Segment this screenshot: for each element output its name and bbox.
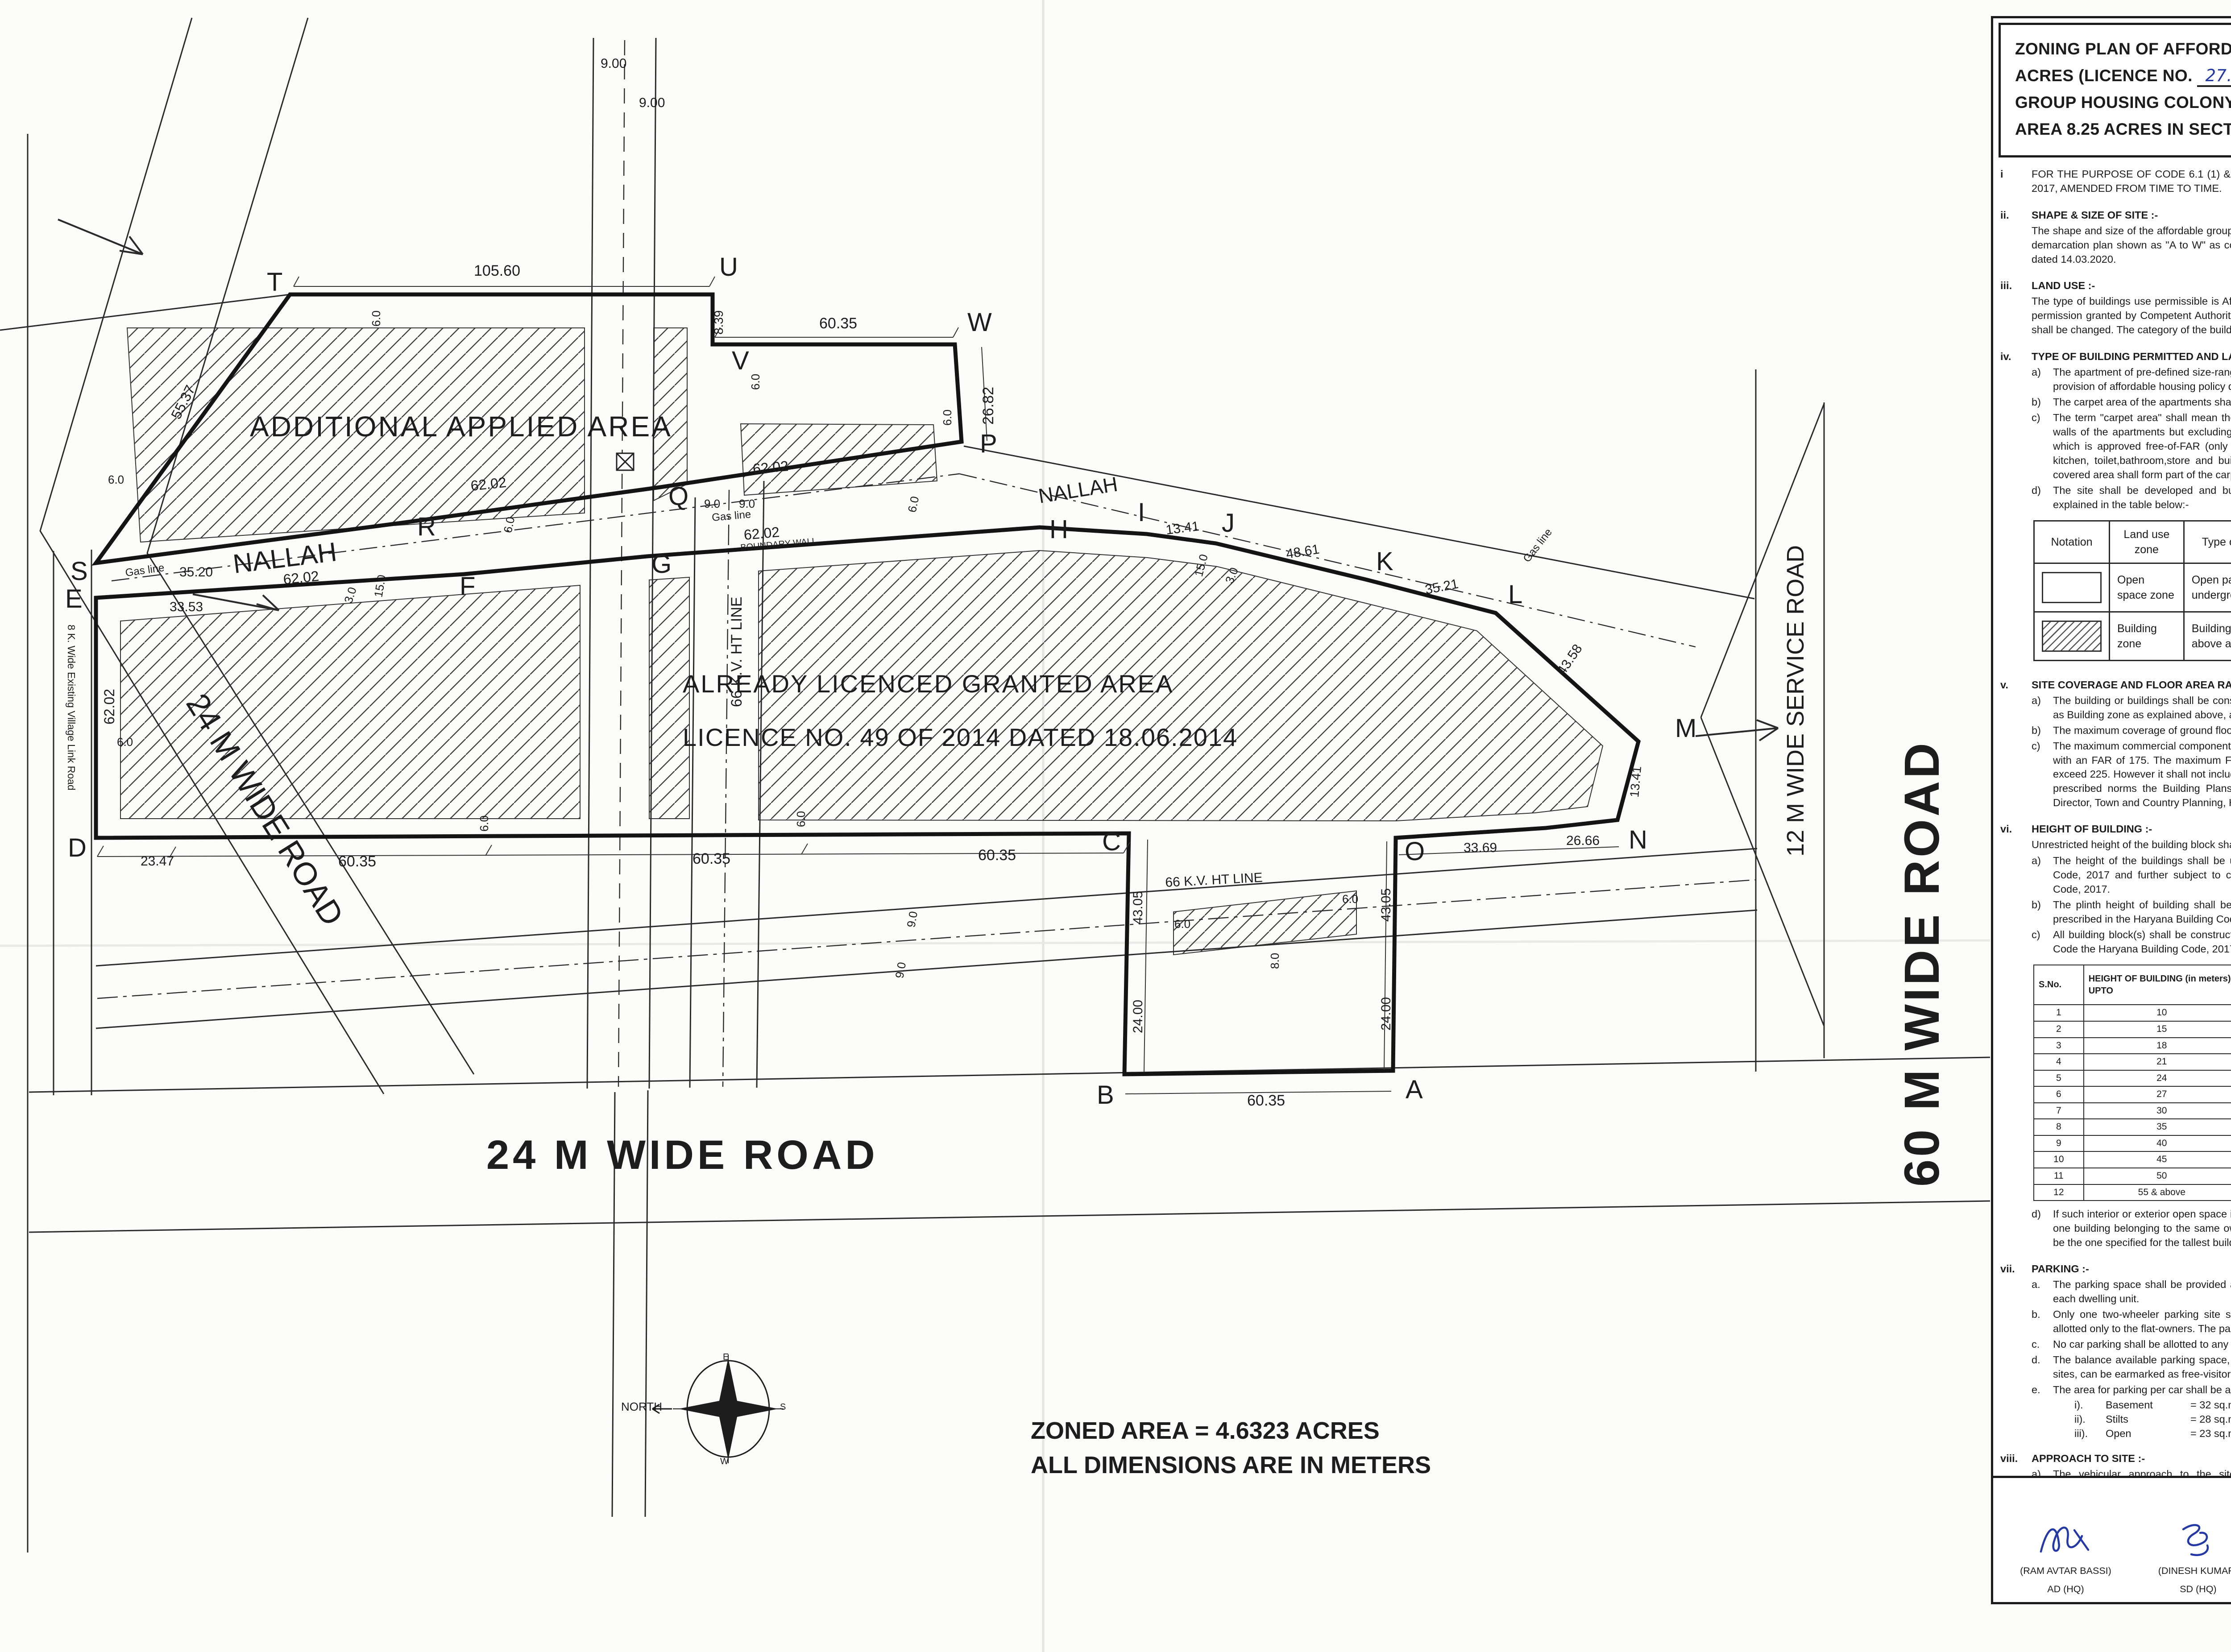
plan-label: W <box>967 308 992 337</box>
notation-header: Land use zone <box>2110 521 2184 563</box>
plan-label: D <box>68 833 87 862</box>
note-subitem: a.The parking space shall be provided at… <box>2032 1278 2231 1306</box>
plan-label: ADDITIONAL APPLIED AREA <box>250 410 672 443</box>
plan-label: W <box>720 1457 729 1466</box>
heights-row: 1255 & above16 <box>2034 1184 2231 1201</box>
note-heading: SHAPE & SIZE OF SITE :- <box>2032 208 2231 223</box>
plan-label: 12 M WIDE SERVICE ROAD <box>1782 545 1809 857</box>
plan-label: 8 K. Wide Existing Village Link Road <box>66 625 77 791</box>
note-subitem: d)The site shall be developed and buildi… <box>2032 484 2231 512</box>
open-zone-swatch <box>2042 572 2102 603</box>
plan-label: E <box>65 584 83 613</box>
plan-label: 6.0 <box>794 811 808 827</box>
note-paragraph: The shape and size of the affordable gro… <box>2032 224 2231 267</box>
building-heights-table: S.No.HEIGHT OF BUILDING (in meters) UPTO… <box>2033 965 2231 1201</box>
plan-label: 23.47 <box>141 854 174 869</box>
signatory-name: (RAM AVTAR BASSI) <box>1999 1565 2132 1577</box>
plan-label: 62.02 <box>101 689 117 725</box>
plan-label: 62.02 <box>743 524 780 543</box>
note-number: vii. <box>2000 1262 2032 1441</box>
note-section-i: iFOR THE PURPOSE OF CODE 6.1 (1) & 1.2 (… <box>2000 167 2231 198</box>
plan-label: 3.0 <box>341 585 359 605</box>
notes-left-column: iFOR THE PURPOSE OF CODE 6.1 (1) & 1.2 (… <box>1993 160 2231 1477</box>
signatory-name: (DINESH KUMAR) <box>2132 1565 2231 1577</box>
plan-label: A <box>1406 1075 1423 1104</box>
plan-label: 8.39 <box>712 311 726 335</box>
plan-label: 33.53 <box>170 600 203 614</box>
plan-label: 26.66 <box>1566 833 1600 848</box>
plan-label: J <box>1222 509 1235 538</box>
plan-label: 43.05 <box>1379 888 1393 922</box>
plan-label: ALL DIMENSIONS ARE IN METERS <box>1031 1452 1431 1478</box>
note-section-iii: iii.LAND USE :-The type of buildings use… <box>2000 279 2231 339</box>
plan-label: 9.0 <box>704 497 720 510</box>
plan-label: 60 M WIDE ROAD <box>1895 740 1949 1187</box>
note-subitem: a)The apartment of pre-defined size-rang… <box>2032 365 2231 394</box>
plan-label: 9.0 <box>892 961 908 979</box>
note-heading: SITE COVERAGE AND FLOOR AREA RATIO (FAR)… <box>2032 678 2231 692</box>
plan-label: 33.69 <box>1464 840 1497 855</box>
heights-row: 73010 <box>2034 1103 2231 1119</box>
note-subitem: c)The term "carpet area" shall mean the … <box>2032 411 2231 482</box>
plan-label: K <box>1376 547 1393 576</box>
plan-label: 15.0 <box>371 574 388 598</box>
note-heading: LAND USE :- <box>2032 279 2231 293</box>
plan-label: 60.35 <box>338 853 376 870</box>
plan-label: 9.00 <box>639 95 665 110</box>
note-subitem: e.The area for parking per car shall be … <box>2032 1383 2231 1397</box>
plan-label: B <box>1097 1081 1114 1110</box>
note-paragraph: Unrestricted height of the building bloc… <box>2032 838 2231 852</box>
plan-label: 60.35 <box>1247 1092 1285 1109</box>
heights-row: 6279 <box>2034 1086 2231 1103</box>
signature-scribble <box>2165 1511 2231 1561</box>
plan-label: 6.0 <box>108 473 124 486</box>
plan-label: R <box>417 512 436 541</box>
note-subitem: b)The maximum coverage of ground floor s… <box>2032 724 2231 738</box>
plan-label: 35.21 <box>1424 576 1460 597</box>
note-subitem: c.No car parking shall be allotted to an… <box>2032 1337 2231 1352</box>
notes-columns: iFOR THE PURPOSE OF CODE 6.1 (1) & 1.2 (… <box>1993 160 2231 1477</box>
heights-row: 104513 <box>2034 1151 2231 1168</box>
plan-label: 105.60 <box>474 262 520 279</box>
zoning-plan-sheet: ADDITIONAL APPLIED AREAALREADY LICENCED … <box>0 0 2231 1652</box>
plan-label: 13.41 <box>1627 766 1644 798</box>
plan-label: NORTH <box>621 1400 662 1413</box>
plan-label: S <box>780 1402 786 1412</box>
plan-label: 35.20 <box>179 565 213 580</box>
plan-label: 24.00 <box>1131 1000 1145 1033</box>
plan-label: 6.0 <box>477 816 491 832</box>
plan-label: 48.61 <box>1285 542 1320 562</box>
title-block: ZONING PLAN OF AFFORDABLE GROUP HOUSING … <box>1999 23 2231 157</box>
plan-label: E <box>723 1352 729 1362</box>
north-compass <box>652 1354 784 1463</box>
signatory-designation: SD (HQ) <box>2132 1584 2231 1595</box>
plan-label: 9.00 <box>601 56 626 71</box>
plan-label: 9.0 <box>739 497 755 510</box>
plan-label: H <box>1049 515 1068 544</box>
note-number: iii. <box>2000 279 2032 339</box>
plan-label: 6.0 <box>369 311 383 327</box>
hatched-zone-swatch <box>2042 621 2102 652</box>
note-heading: HEIGHT OF BUILDING :- <box>2032 822 2231 836</box>
plan-label: 9.0 <box>904 910 920 928</box>
signature-cell: (RAM AVTAR BASSI)AD (HQ) <box>1999 1511 2132 1595</box>
plan-label: 43.58 <box>1554 642 1585 678</box>
note-number: i <box>2000 167 2032 198</box>
plan-label: U <box>719 253 738 282</box>
heights-row: 94012 <box>2034 1135 2231 1152</box>
plan-label: V <box>732 346 749 375</box>
plan-label: I <box>1138 498 1145 527</box>
note-subitem: c)All building block(s) shall be constru… <box>2032 928 2231 956</box>
heights-row: 1103 <box>2034 1005 2231 1021</box>
plan-label: L <box>1508 580 1522 609</box>
plan-label: Gas line <box>711 508 751 524</box>
heights-row: 2155 <box>2034 1021 2231 1038</box>
note-section-v: v.SITE COVERAGE AND FLOOR AREA RATIO (FA… <box>2000 678 2231 812</box>
plan-label: ZONED AREA = 4.6323 ACRES <box>1031 1417 1380 1444</box>
notation-table: NotationLand use zoneType of building pe… <box>2033 520 2231 661</box>
notation-row: Building zoneBuilding as per permissible… <box>2034 612 2231 660</box>
site-plan-drawing: ADDITIONAL APPLIED AREAALREADY LICENCED … <box>0 0 1990 1652</box>
plan-label: 26.82 <box>980 387 997 425</box>
note-heading: TYPE OF BUILDING PERMITTED AND LAND USES… <box>2032 350 2231 364</box>
note-paragraph: The type of buildings use permissible is… <box>2032 294 2231 337</box>
plan-label: NALLAH <box>1037 472 1119 508</box>
note-subitem: b)The plinth height of building shall be… <box>2032 898 2231 927</box>
signatory-designation: AD (HQ) <box>1999 1584 2132 1595</box>
note-number: iv. <box>2000 350 2032 667</box>
note-subitem: d)If such interior or exterior open spac… <box>2032 1207 2231 1250</box>
heights-header: S.No. <box>2034 965 2084 1005</box>
note-subitem: a)The height of the buildings shall be u… <box>2032 854 2231 897</box>
plan-label: 60.35 <box>819 315 857 332</box>
plan-label: 66 K.V. HT LINE <box>1165 870 1263 890</box>
plan-label: LICENCE NO. 49 OF 2014 DATED 18.06.2014 <box>683 723 1238 751</box>
note-subitem: a)The building or buildings shall be con… <box>2032 694 2231 722</box>
plan-label: 66 K.V. HT LINE <box>728 596 745 707</box>
heights-header: HEIGHT OF BUILDING (in meters) UPTO <box>2084 965 2231 1005</box>
plan-label: N <box>1629 825 1647 854</box>
note-subitem: b.Only one two-wheeler parking site shal… <box>2032 1308 2231 1336</box>
note-section-viii: viii.APPROACH TO SITE :-a).The vehicular… <box>2000 1452 2231 1477</box>
notation-header: Type of building permitted/permissible s… <box>2184 521 2231 563</box>
notes-panel: ZONING PLAN OF AFFORDABLE GROUP HOUSING … <box>1991 16 2231 1604</box>
note-number: v. <box>2000 678 2032 812</box>
plan-label: 6.0 <box>749 374 762 390</box>
note-number: viii. <box>2000 1452 2032 1477</box>
note-heading: APPROACH TO SITE :- <box>2032 1452 2231 1466</box>
heights-row: 83511 <box>2034 1119 2231 1135</box>
plan-label: 62.02 <box>752 458 789 477</box>
note-section-vii: vii.PARKING :-a.The parking space shall … <box>2000 1262 2231 1441</box>
plan-label: 8.0 <box>1268 953 1281 969</box>
heights-row: 3186 <box>2034 1038 2231 1054</box>
plan-label: O <box>1405 837 1425 866</box>
plan-label: 60.35 <box>978 847 1016 864</box>
road-crossing-symbol <box>617 453 634 470</box>
parking-rate-row: iii).Open= 23 sq.mtrs. <box>2074 1427 2231 1441</box>
signature-cell: (DINESH KUMAR)SD (HQ) <box>2132 1511 2231 1595</box>
plan-label: G <box>651 550 672 579</box>
plan-label: 6.0 <box>1174 917 1190 931</box>
plan-label: 13.41 <box>1165 519 1200 538</box>
heights-row: 115014 <box>2034 1168 2231 1184</box>
parking-rate-row: ii).Stilts= 28 sq.mtrs. <box>2074 1412 2231 1427</box>
plan-label: 6.0 <box>501 516 518 534</box>
plan-label: 6.0 <box>941 410 954 426</box>
plan-label: 60.35 <box>693 850 730 867</box>
notation-row: Open space zoneOpen parking, garden, lan… <box>2034 563 2231 612</box>
plan-label: 24.00 <box>1379 997 1393 1031</box>
note-heading: PARKING :- <box>2032 1262 2231 1276</box>
note-section-vi: vi.HEIGHT OF BUILDING :-Unrestricted hei… <box>2000 822 2231 1251</box>
parking-rate-row: i).Basement= 32 sq.mtrs. <box>2074 1398 2231 1412</box>
plan-label: 6.0 <box>1342 892 1358 906</box>
plan-label: 24 M WIDE ROAD <box>486 1132 879 1178</box>
note-subitem: c)The maximum commercial component shall… <box>2032 739 2231 811</box>
plan-label: Q <box>668 482 688 511</box>
plan-label: F <box>460 572 475 601</box>
plan-label: 6.0 <box>117 735 133 749</box>
notation-header: Notation <box>2034 521 2110 563</box>
plan-label: T <box>267 268 282 297</box>
plan-label: M <box>1675 714 1696 743</box>
heights-row: 4217 <box>2034 1054 2231 1070</box>
note-subitem: d.The balance available parking space, i… <box>2032 1353 2231 1382</box>
signature-scribble <box>2032 1511 2099 1561</box>
note-section-iv: iv.TYPE OF BUILDING PERMITTED AND LAND U… <box>2000 350 2231 667</box>
plan-label: ALREADY LICENCED GRANTED AREA <box>683 670 1174 698</box>
title-licence-no-handwritten: 27. <box>2197 66 2231 87</box>
fold-crease <box>0 940 1990 946</box>
plan-label: C <box>1102 827 1121 856</box>
signature-strip: (RAM AVTAR BASSI)AD (HQ)(DINESH KUMAR)SD… <box>1993 1476 2231 1602</box>
note-subitem: b)The carpet area of the apartments shal… <box>2032 395 2231 410</box>
note-number: vi. <box>2000 822 2032 1251</box>
plan-label: P <box>980 429 997 458</box>
note-number: ii. <box>2000 208 2032 269</box>
plan-label: S <box>70 557 88 586</box>
note-paragraph: FOR THE PURPOSE OF CODE 6.1 (1) & 1.2 (x… <box>2032 167 2231 196</box>
plan-label: 6.0 <box>905 495 922 514</box>
plan-label: 43.05 <box>1131 891 1145 924</box>
note-section-ii: ii.SHAPE & SIZE OF SITE :-The shape and … <box>2000 208 2231 269</box>
heights-row: 5248 <box>2034 1070 2231 1087</box>
